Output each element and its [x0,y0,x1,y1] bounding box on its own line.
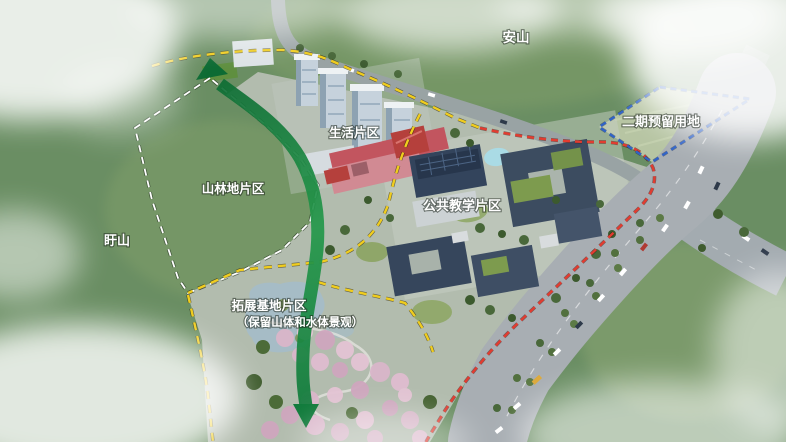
label-xushan: 盱山 [104,233,130,249]
label-phase2-reserved-land: 二期预留用地 [622,114,700,130]
label-mountain-forest-district: 山林地片区 [202,181,265,196]
label-expansion-base-note: （保留山体和水体景观） [237,315,364,329]
label-public-teaching-district: 公共教学片区 [423,198,501,214]
label-anshan: 安山 [503,29,530,46]
label-living-district: 生活片区 [329,125,380,140]
site-plan-canvas: 安山 盱山 二期预留用地 生活片区 山林地片区 公共教学片区 拓展基地片区 （保… [0,0,786,442]
campus-masterplan-rendering: 安山 盱山 二期预留用地 生活片区 山林地片区 公共教学片区 拓展基地片区 （保… [0,0,786,442]
label-expansion-base-district: 拓展基地片区 [231,298,307,313]
